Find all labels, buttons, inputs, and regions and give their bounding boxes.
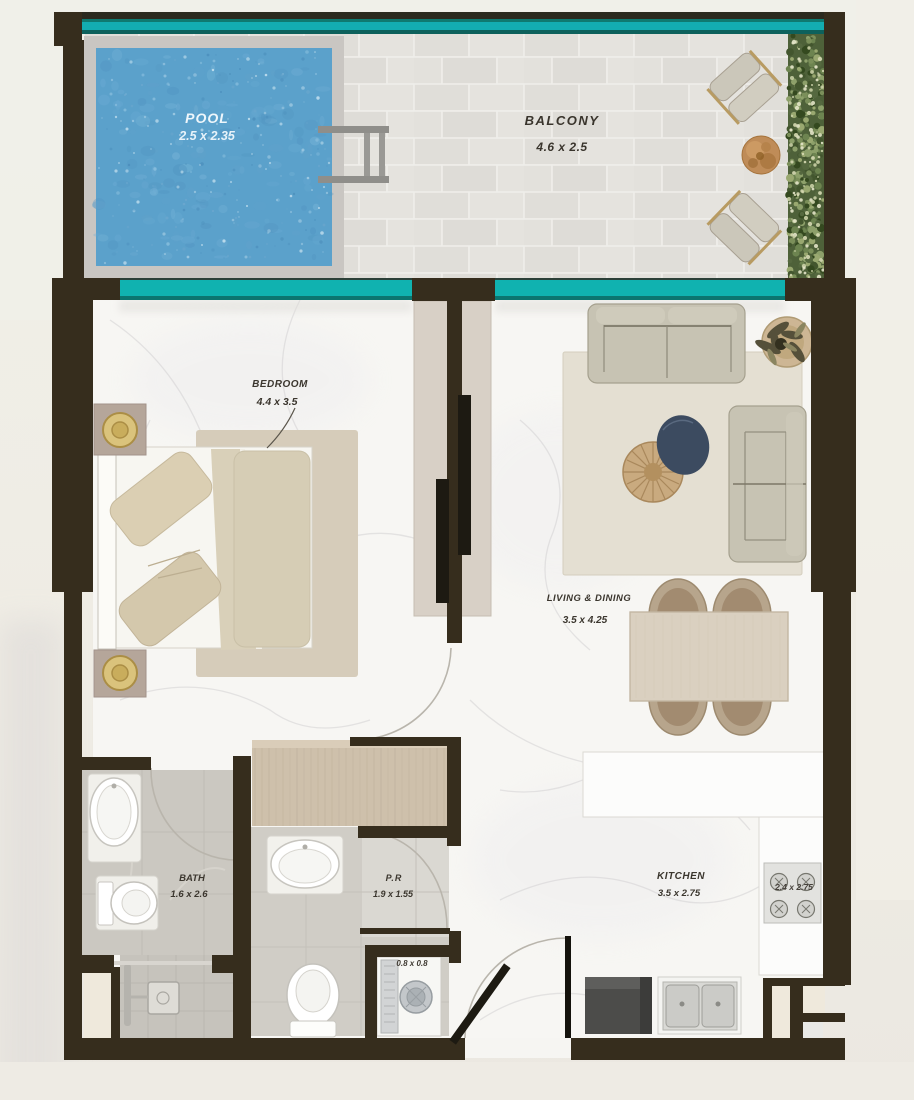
svg-text:0.8 x 0.8: 0.8 x 0.8 <box>396 959 428 968</box>
svg-text:3.5 x 2.75: 3.5 x 2.75 <box>658 888 701 899</box>
svg-text:1.6 x 2.6: 1.6 x 2.6 <box>171 889 209 900</box>
svg-text:P.R: P.R <box>386 873 403 883</box>
svg-text:3.5 x 4.25: 3.5 x 4.25 <box>563 615 608 626</box>
svg-text:BALCONY: BALCONY <box>525 113 600 128</box>
svg-text:4.6 x 2.5: 4.6 x 2.5 <box>535 140 587 154</box>
svg-text:BEDROOM: BEDROOM <box>252 379 308 390</box>
svg-text:POOL: POOL <box>185 110 229 126</box>
svg-text:LIVING & DINING: LIVING & DINING <box>547 593 632 604</box>
svg-text:2.5 x 2.35: 2.5 x 2.35 <box>178 129 236 143</box>
svg-text:2.4 x 2.75: 2.4 x 2.75 <box>774 882 813 892</box>
svg-text:KITCHEN: KITCHEN <box>657 871 705 882</box>
svg-text:BATH: BATH <box>179 873 206 884</box>
svg-text:1.9 x 1.55: 1.9 x 1.55 <box>373 889 414 899</box>
svg-text:4.4 x 3.5: 4.4 x 3.5 <box>256 396 298 408</box>
